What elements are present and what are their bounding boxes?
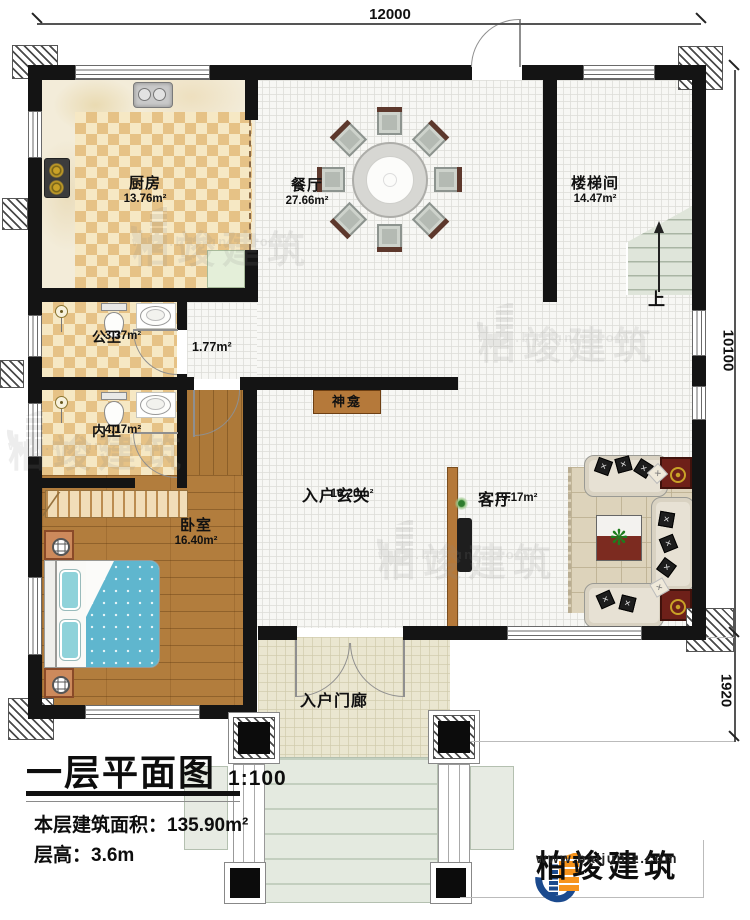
toilet-icon <box>101 303 127 311</box>
wall-segment <box>28 65 42 111</box>
dim-tick <box>695 12 706 23</box>
window <box>28 315 42 357</box>
shrine-label: 神龛 <box>332 394 362 409</box>
fridge <box>207 250 245 288</box>
dining-table-center <box>383 173 397 187</box>
bed-headboard <box>44 560 56 668</box>
step-rail <box>438 764 470 864</box>
company-website: www.baijunjz.com <box>536 851 678 866</box>
tv-plant <box>455 497 468 510</box>
washbasin-inner <box>146 309 165 321</box>
dim-tick <box>31 12 42 23</box>
bed-pillow <box>60 570 80 610</box>
dim-top: 12000 <box>345 6 435 23</box>
wall-segment <box>258 626 297 640</box>
door-leaf <box>519 19 521 67</box>
side-slab-right <box>470 766 514 850</box>
window <box>75 65 210 80</box>
dim-right-lower: 1920 <box>718 661 735 721</box>
plan-title: 一层平面图1:100 <box>26 744 287 796</box>
room-label-entry-hall: 入户玄关16.20m² <box>302 488 402 501</box>
stair-direction-arrow <box>654 221 664 233</box>
washbasin-inner <box>146 398 165 410</box>
wall-segment <box>28 288 258 302</box>
window <box>507 626 642 640</box>
stove-burner <box>49 163 64 178</box>
dining-chair <box>434 167 459 192</box>
dim-line-top <box>37 23 701 25</box>
room-label-public-bath: 公卫3.37m² <box>92 330 154 343</box>
nightstand <box>44 668 74 698</box>
dim-right-upper: 10100 <box>720 311 737 391</box>
dim-tick <box>728 59 739 70</box>
room-label-dining: 餐厅27.66m² <box>270 178 344 208</box>
wall-segment <box>177 478 187 488</box>
title-underline <box>26 791 240 796</box>
window <box>85 705 200 719</box>
window <box>583 65 655 80</box>
extension-line <box>706 637 734 638</box>
window <box>692 310 706 356</box>
wall-segment <box>245 80 258 120</box>
wall-segment <box>692 356 706 386</box>
plan-scale: 1:100 <box>228 767 287 790</box>
shower-hose <box>61 409 62 423</box>
plant-icon: ❋ <box>607 526 631 550</box>
extension-line <box>470 741 734 742</box>
extension-line <box>703 840 704 897</box>
window <box>28 403 42 457</box>
step-column-core <box>436 868 466 898</box>
sink-basin <box>138 88 151 101</box>
wall-segment <box>28 457 42 577</box>
column-marker <box>0 360 24 388</box>
room-label-private-bath: 内卫4.17m² <box>92 424 154 437</box>
dining-chair <box>377 224 402 249</box>
window <box>28 111 42 158</box>
wall-segment <box>28 377 194 390</box>
sink-basin <box>153 88 166 101</box>
wall-segment <box>28 705 85 719</box>
floor-area-line: 本层建筑面积：135.90m² <box>34 810 248 837</box>
dim-line-right <box>734 70 736 742</box>
wall-segment <box>692 420 706 640</box>
window <box>692 386 706 420</box>
wall-segment <box>177 302 187 330</box>
step-column-core <box>230 868 260 898</box>
dining-chair <box>377 110 402 135</box>
room-label-kitchen: 厨房13.76m² <box>105 176 185 206</box>
room-label-bedroom: 卧室16.40m² <box>158 518 234 548</box>
column-marker <box>2 198 28 230</box>
toilet-icon <box>101 392 127 400</box>
room-label-living: 客厅19.17m² <box>478 492 554 505</box>
title-underline-thin <box>26 801 240 802</box>
stair-direction-line <box>658 232 660 292</box>
sliding-door <box>249 120 251 250</box>
tv <box>457 518 472 572</box>
shower-icon <box>55 396 68 409</box>
wall-segment <box>403 626 507 640</box>
cushion <box>658 511 675 528</box>
wall-segment <box>692 65 706 310</box>
shrine-shelf: 神龛 <box>313 390 381 414</box>
floor-height-line: 层高：3.6m <box>34 840 134 867</box>
wall-segment <box>240 377 458 390</box>
wall-segment <box>642 626 706 640</box>
nightstand <box>44 530 74 560</box>
porch-column-core <box>438 721 470 753</box>
stove-burner <box>49 180 64 195</box>
entry-steps <box>264 757 438 903</box>
shower-icon <box>55 305 68 318</box>
shower-hose <box>61 318 62 332</box>
floor-plan-page: 上 神龛 ❋ <box>0 0 750 920</box>
wall-segment <box>243 377 257 719</box>
wall-segment <box>42 478 135 488</box>
bed-pillow <box>60 620 80 660</box>
wall-segment <box>210 65 472 80</box>
room-label-stairwell: 楼梯间14.47m² <box>555 176 635 206</box>
door-arc <box>471 19 519 67</box>
wall-segment <box>245 250 258 302</box>
window <box>28 577 42 655</box>
